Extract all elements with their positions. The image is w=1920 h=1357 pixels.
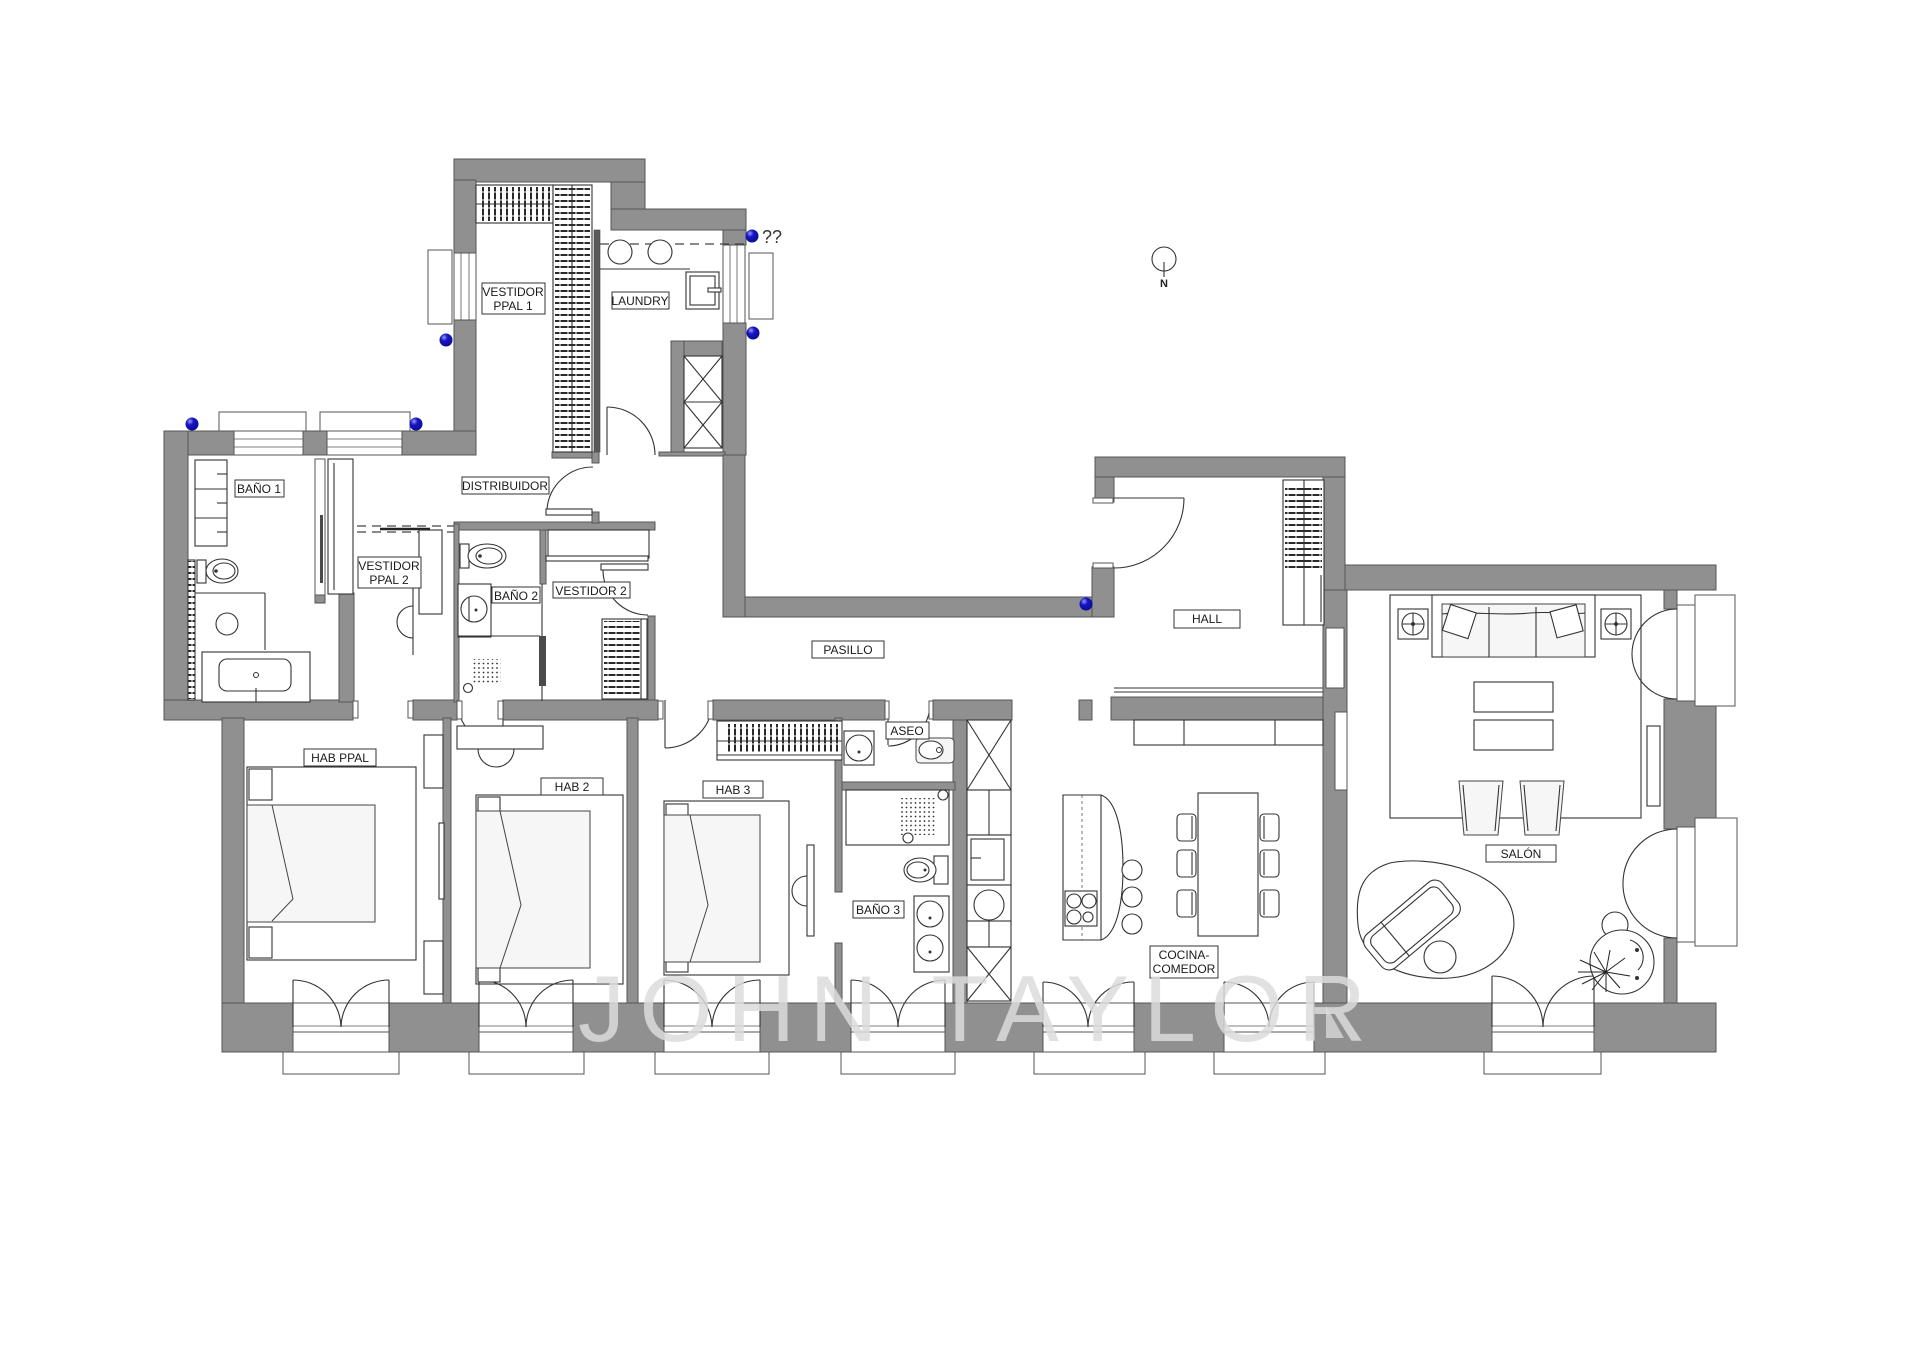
svg-text:HAB 3: HAB 3 <box>716 783 751 797</box>
svg-text:BAÑO 3: BAÑO 3 <box>856 903 900 917</box>
svg-text:HALL: HALL <box>1192 612 1222 626</box>
svg-text:PASILLO: PASILLO <box>823 643 872 657</box>
svg-text:BAÑO 1: BAÑO 1 <box>237 482 281 496</box>
svg-text:HAB PPAL: HAB PPAL <box>311 751 369 765</box>
svg-text:HAB 2: HAB 2 <box>555 780 590 794</box>
svg-text:DISTRIBUIDOR: DISTRIBUIDOR <box>462 479 548 493</box>
svg-text:LAUNDRY: LAUNDRY <box>611 294 668 308</box>
svg-text:VESTIDOR: VESTIDOR <box>358 559 420 573</box>
svg-text:??: ?? <box>762 227 782 247</box>
svg-text:PPAL 1: PPAL 1 <box>493 299 533 313</box>
svg-text:VESTIDOR: VESTIDOR <box>482 285 544 299</box>
svg-text:VESTIDOR 2: VESTIDOR 2 <box>555 584 627 598</box>
svg-text:BAÑO 2: BAÑO 2 <box>494 589 538 603</box>
svg-text:ASEO: ASEO <box>890 724 923 738</box>
svg-text:JOHN TAYLOR: JOHN TAYLOR <box>578 956 1378 1061</box>
svg-text:PPAL 2: PPAL 2 <box>369 573 409 587</box>
svg-text:SALÓN: SALÓN <box>1501 846 1542 861</box>
svg-text:N: N <box>1160 278 1168 290</box>
